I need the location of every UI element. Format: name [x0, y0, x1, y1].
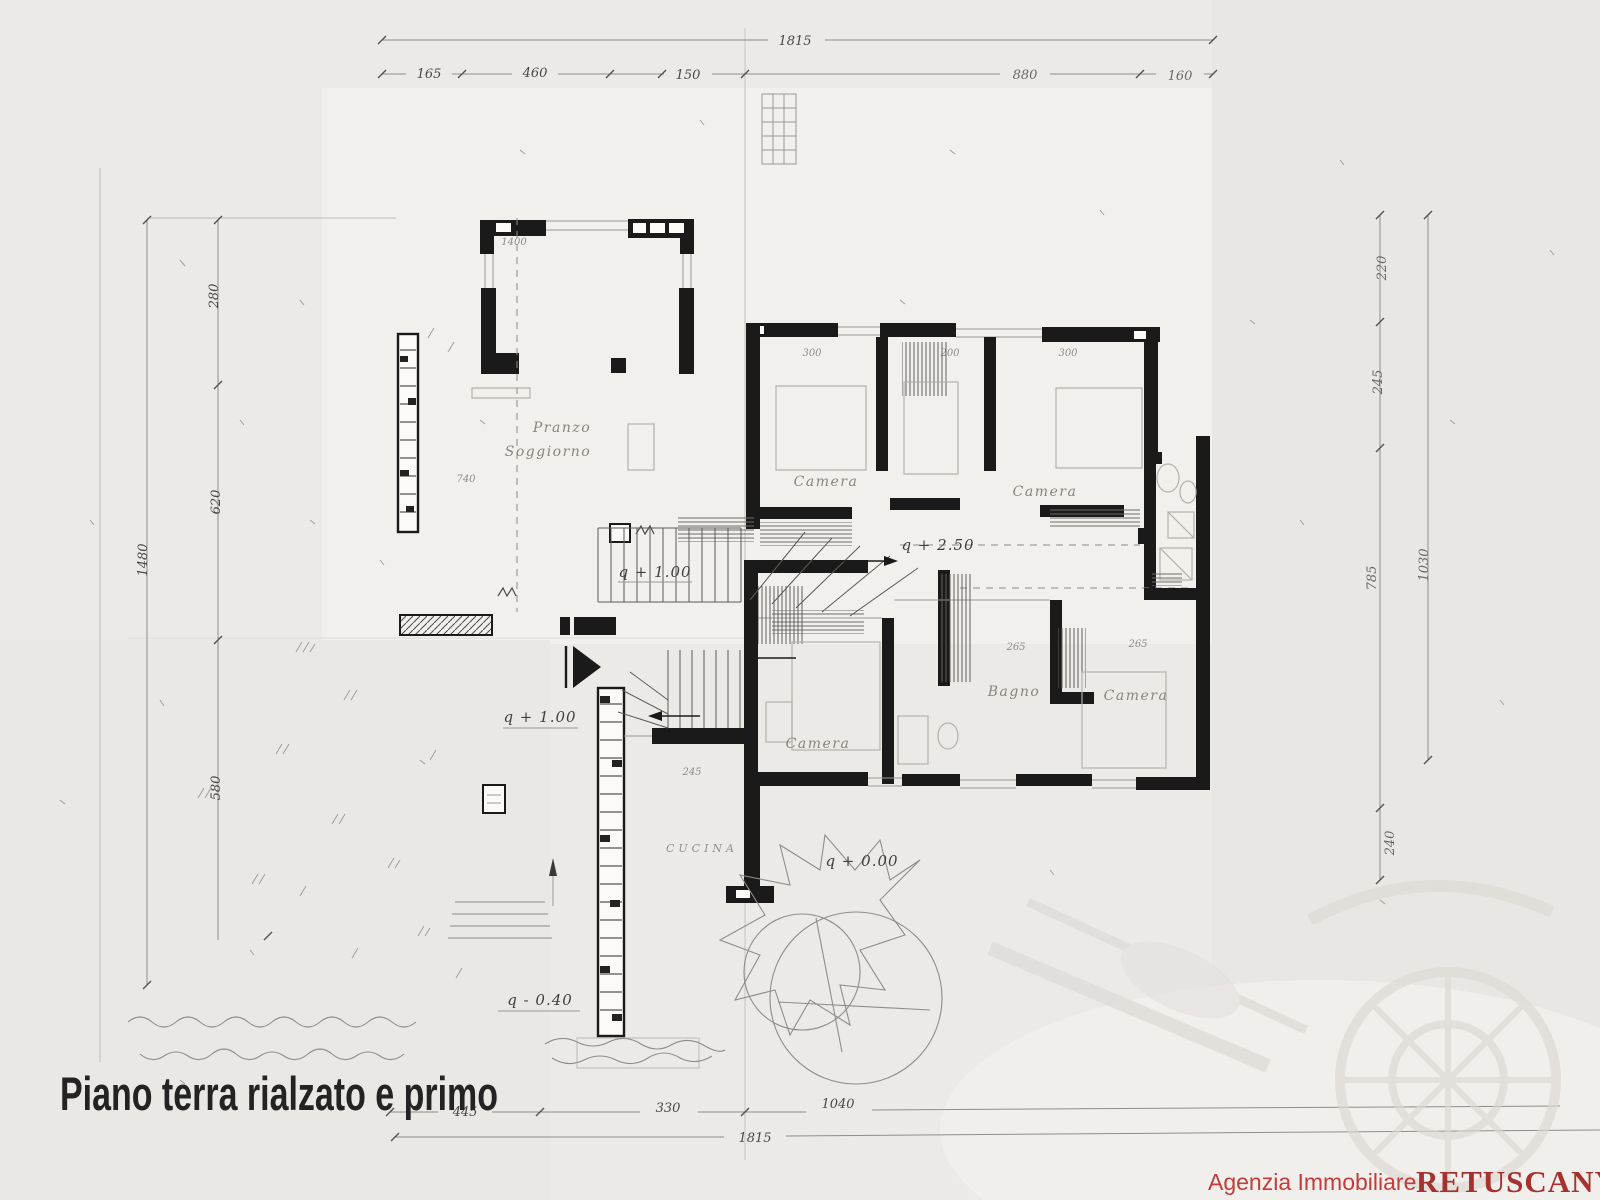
- elevation-q100-lower: q + 1.00: [503, 708, 576, 726]
- elevation-q250: q + 2.50: [901, 536, 974, 554]
- room-label-cucina: CUCINA: [666, 842, 738, 855]
- dim-inner-740: 740: [456, 474, 476, 485]
- elevation-q000: q + 0.00: [825, 852, 898, 870]
- stair-hatch-2: [940, 574, 972, 682]
- rubble-column: [598, 688, 624, 1036]
- dim-left-total: 1480: [136, 543, 151, 576]
- room-label-bagno: Bagno: [987, 684, 1041, 700]
- room-label-camera-nw: Camera: [794, 474, 859, 490]
- dim-inner-300a: 300: [802, 348, 822, 359]
- room-label-camera-se: Camera: [1104, 688, 1169, 704]
- dim-left-580: 580: [209, 776, 224, 801]
- dim-left-620: 620: [209, 490, 224, 515]
- dim-inner-245: 245: [681, 767, 701, 778]
- agency-prefix: Agenzia Immobiliare: [1208, 1169, 1416, 1195]
- floor-plan-title: Piano terra rialzato e primo: [60, 1067, 498, 1120]
- room-label-pranzo: Pranzo: [532, 420, 591, 436]
- dim-top-460: 460: [522, 66, 548, 81]
- agency-branding: Agenzia Immobiliare RETUSCANY: [1208, 1164, 1600, 1199]
- dim-inner-300b: 300: [1058, 348, 1078, 359]
- dim-inner-265a: 265: [1005, 642, 1025, 653]
- dim-right-245: 245: [1371, 370, 1386, 396]
- dim-top-165: 165: [417, 67, 442, 82]
- dim-top-160: 160: [1168, 69, 1193, 84]
- column-marker: [610, 524, 630, 542]
- elevation-qneg040: q - 0.40: [507, 991, 573, 1009]
- dim-right-785: 785: [1365, 566, 1380, 591]
- rubble-wall-left: [398, 334, 418, 532]
- room-label-camera-sw: Camera: [786, 736, 851, 752]
- dim-right-total: 1030: [1417, 548, 1432, 581]
- elevation-q100-upper: q + 1.00: [618, 563, 691, 581]
- dim-inner-265b: 265: [1127, 639, 1147, 650]
- dim-bottom-total: 1815: [738, 1131, 771, 1146]
- pillar-marker: [483, 785, 505, 813]
- dim-top-total: 1815: [778, 34, 811, 49]
- dim-right-240: 240: [1383, 831, 1398, 857]
- floor-plan-drawing: 1815 165 460 150 880 160 1480 280 620 58…: [0, 0, 1600, 1200]
- title-block: Piano terra rialzato e primo: [60, 1067, 498, 1120]
- dim-bottom-330: 330: [656, 1101, 681, 1116]
- closet-hatch: [902, 342, 948, 396]
- dim-left-280: 280: [207, 284, 222, 310]
- dim-bottom-1040: 1040: [821, 1097, 854, 1112]
- dim-top-880: 880: [1013, 68, 1038, 83]
- room-label-camera-ne: Camera: [1013, 484, 1078, 500]
- dim-right-220: 220: [1375, 256, 1390, 282]
- balcony-hatch-2: [1050, 507, 1140, 529]
- agency-name: RETUSCANY: [1416, 1164, 1600, 1199]
- dim-top-150: 150: [676, 68, 701, 83]
- room-label-soggiorno: Soggiorno: [505, 444, 592, 460]
- balcony-hatch-1: [760, 522, 852, 546]
- dim-inner-1400: 1400: [501, 237, 527, 248]
